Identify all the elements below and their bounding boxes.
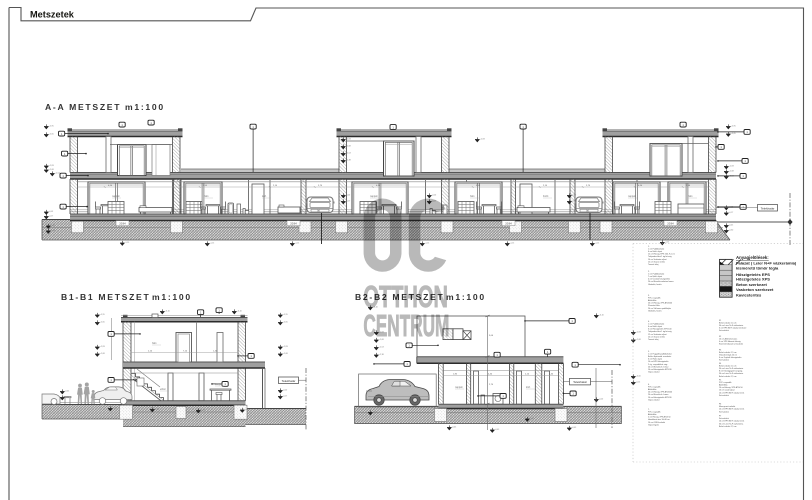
svg-text:+2,68: +2,68 <box>283 353 288 355</box>
svg-text:+6,10: +6,10 <box>599 314 604 316</box>
svg-text:-1,15: -1,15 <box>595 242 599 244</box>
svg-text:-1,15: -1,15 <box>510 242 514 244</box>
svg-text:előtér: előtér <box>160 388 166 391</box>
svg-text:Telekhatár: Telekhatár <box>761 206 775 210</box>
svg-text:Vasbeton szerkezet: Vasbeton szerkezet <box>736 287 774 292</box>
svg-text:-0,02: -0,02 <box>346 194 350 196</box>
svg-text:+2,83: +2,83 <box>636 331 641 333</box>
svg-text:-0,60: -0,60 <box>729 229 733 231</box>
svg-text:20/64: 20/64 <box>667 222 674 226</box>
svg-text:-1,15: -1,15 <box>210 242 214 244</box>
svg-text:-0,45: -0,45 <box>495 429 499 431</box>
svg-text:+2,68: +2,68 <box>729 170 734 172</box>
svg-text:CENTRUM: CENTRUM <box>363 308 449 343</box>
svg-text:+6,10: +6,10 <box>165 310 170 312</box>
svg-text:-0,02: -0,02 <box>572 194 576 196</box>
svg-text:+2,53: +2,53 <box>346 152 351 154</box>
svg-text:+2,83: +2,83 <box>49 165 54 167</box>
svg-text:+2,83: +2,83 <box>729 165 734 167</box>
svg-text:Metszetek: Metszetek <box>30 10 75 20</box>
svg-text:-0,60: -0,60 <box>51 230 55 232</box>
svg-text:+5,65: +5,65 <box>731 133 736 135</box>
svg-text:m1:100: m1:100 <box>152 292 192 302</box>
svg-text:nappali: nappali <box>112 196 120 198</box>
svg-text:-0,45: -0,45 <box>530 418 534 420</box>
svg-text:-0,02: -0,02 <box>283 389 287 391</box>
svg-text:-0,45: -0,45 <box>201 409 205 411</box>
svg-text:konyha: konyha <box>215 384 223 386</box>
svg-text:-0,17: -0,17 <box>729 212 733 214</box>
svg-text:Kavicsterítés: Kavicsterítés <box>736 293 762 298</box>
svg-text:-1,15: -1,15 <box>295 242 299 244</box>
svg-text:-0,02: -0,02 <box>49 211 53 213</box>
svg-text:közl.: közl. <box>262 196 267 198</box>
svg-text:-0,02: -0,02 <box>432 194 436 196</box>
svg-text:-0,17: -0,17 <box>346 200 350 202</box>
svg-text:-0,45: -0,45 <box>51 225 55 227</box>
svg-text:nappali: nappali <box>455 387 463 389</box>
svg-text:nappali: nappali <box>370 196 378 198</box>
svg-text:-0,45: -0,45 <box>729 224 733 226</box>
svg-text:-1,15: -1,15 <box>665 241 669 243</box>
svg-text:-0,45: -0,45 <box>452 426 456 428</box>
svg-text:+5,95: +5,95 <box>731 125 736 127</box>
svg-text:háló: háló <box>688 196 693 198</box>
svg-text:+2,53: +2,53 <box>379 346 384 348</box>
svg-text:+2,83: +2,83 <box>480 138 485 140</box>
svg-text:+5,65: +5,65 <box>283 321 288 323</box>
svg-text:-0,45: -0,45 <box>155 408 159 410</box>
svg-text:20/64: 20/64 <box>505 222 512 226</box>
svg-text:-0,17: -0,17 <box>283 395 287 397</box>
svg-text:-0,45: -0,45 <box>113 407 117 409</box>
svg-text:20/64: 20/64 <box>119 222 126 226</box>
svg-text:-0,60: -0,60 <box>65 396 69 398</box>
svg-text:-0,45: -0,45 <box>65 390 69 392</box>
svg-text:Telekhatár: Telekhatár <box>282 379 296 383</box>
svg-text:-0,17: -0,17 <box>572 200 576 202</box>
svg-text:Hőszigetelés XPS: Hőszigetelés XPS <box>736 277 770 282</box>
svg-text:+2,68: +2,68 <box>49 169 54 171</box>
svg-text:-0,45: -0,45 <box>245 409 249 411</box>
svg-text:m1:100: m1:100 <box>446 292 486 302</box>
svg-text:Telekhatár: Telekhatár <box>573 380 587 384</box>
svg-text:-1,15: -1,15 <box>425 242 429 244</box>
svg-text:fürdő: fürdő <box>543 195 549 198</box>
svg-text:+0,00: +0,00 <box>636 375 641 377</box>
svg-text:+5,95: +5,95 <box>49 125 54 127</box>
svg-text:+5,65: +5,65 <box>49 133 54 135</box>
svg-text:nappali: nappali <box>628 196 636 198</box>
svg-text:m1:100: m1:100 <box>125 102 165 112</box>
svg-text:20/64: 20/64 <box>290 222 297 226</box>
svg-text:+2,83: +2,83 <box>283 346 288 348</box>
svg-text:B1-B1 METSZET: B1-B1 METSZET <box>61 292 150 302</box>
svg-text:A-A METSZET: A-A METSZET <box>45 102 121 112</box>
svg-text:-0,45: -0,45 <box>373 411 377 413</box>
svg-text:+2,68: +2,68 <box>636 339 641 341</box>
svg-text:-0,45: -0,45 <box>572 427 576 429</box>
svg-text:háló: háló <box>470 196 475 198</box>
svg-text:+5,65: +5,65 <box>100 321 105 323</box>
svg-text:-1,15: -1,15 <box>125 242 129 244</box>
svg-text:+2,38: +2,38 <box>379 354 384 356</box>
svg-text:+6,10: +6,10 <box>237 310 242 312</box>
svg-text:+2,38: +2,38 <box>346 159 351 161</box>
svg-text:kisméretű tömör tégla: kisméretű tömör tégla <box>736 266 779 271</box>
svg-text:+2,83: +2,83 <box>100 346 105 348</box>
svg-text:+2,83: +2,83 <box>346 138 351 140</box>
svg-text:-0,02: -0,02 <box>599 398 603 400</box>
svg-text:+2,53: +2,53 <box>55 172 60 174</box>
svg-text:+5,95: +5,95 <box>283 314 288 316</box>
svg-text:+2,68: +2,68 <box>346 145 351 147</box>
svg-text:közl.: közl. <box>526 387 531 389</box>
svg-text:-0,15: -0,15 <box>636 381 640 383</box>
svg-text:háló: háló <box>152 343 157 345</box>
svg-text:+5,95: +5,95 <box>100 314 105 316</box>
svg-text:háló: háló <box>204 196 209 198</box>
svg-text:-0,17: -0,17 <box>49 215 53 217</box>
svg-text:+2,68: +2,68 <box>100 353 105 355</box>
